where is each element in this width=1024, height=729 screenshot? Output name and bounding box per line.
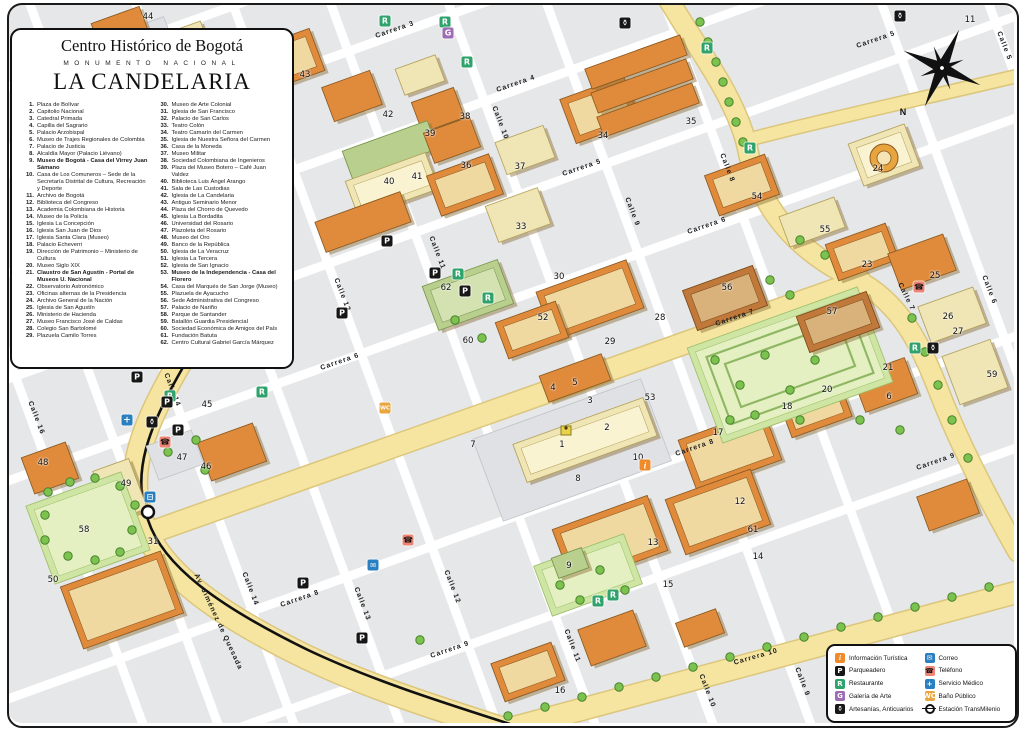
legend-label: Estación TransMilenio: [939, 706, 1001, 713]
poi-item: 4.Capilla del Sagrario: [21, 123, 149, 130]
poi-number: 16.: [21, 228, 34, 235]
poi-label: Universidad del Rosario: [172, 221, 284, 228]
tree: [116, 548, 124, 556]
tree: [44, 488, 52, 496]
legend-label: Restaurante: [849, 680, 883, 687]
poi-item: 39.Plaza del Museo Botero – Café Juan Va…: [156, 165, 284, 179]
map-subtitle: MONUMENTO NACIONAL: [21, 60, 283, 67]
poi-number: 40.: [156, 179, 169, 186]
legend-item-medical: +Servicio Médico: [925, 678, 1009, 690]
poi-number: 9.: [21, 158, 34, 172]
poi-label: Catedral Primada: [37, 116, 149, 123]
poi-label: Iglesia La Bordadita: [172, 214, 284, 221]
poi-label: Casa de Los Comuneros – Sede de la Secre…: [37, 172, 149, 193]
poi-item: 38.Sociedad Colombiana de Ingenieros: [156, 158, 284, 165]
poi-item: 51.Iglesia La Tercera: [156, 256, 284, 263]
poi-label: Palacio Arzobispal: [37, 130, 149, 137]
poi-label: Iglesia Santa Clara (Museo): [37, 235, 149, 242]
poi-label: Palacio de San Carlos: [172, 116, 284, 123]
poi-item: 52.Iglesia de San Ignacio: [156, 263, 284, 270]
poi-label: Plazoleta del Rosario: [172, 228, 284, 235]
poi-number: 27.: [21, 319, 34, 326]
poi-label: Biblioteca Luis Ángel Arango: [172, 179, 284, 186]
poi-item: 53.Museo de la Independencia - Casa del …: [156, 270, 284, 284]
tree: [91, 474, 99, 482]
bolivar-statue: [561, 426, 571, 435]
legend-item-gallery: GGalería de Arte: [835, 690, 919, 702]
poi-item: 16.Iglesia San Juan de Dios: [21, 228, 149, 235]
tree: [192, 436, 200, 444]
poi-label: Dirección de Patrimonio – Ministerio de …: [37, 249, 149, 263]
tree: [201, 466, 209, 474]
tree: [837, 623, 845, 631]
poi-item: 24.Archivo General de la Nación: [21, 298, 149, 305]
tree: [128, 526, 136, 534]
tree: [621, 586, 629, 594]
poi-number: 42.: [156, 193, 169, 200]
gallery-icon: G: [835, 691, 845, 701]
poi-label: Museo Siglo XIX: [37, 263, 149, 270]
tree: [948, 416, 956, 424]
poi-label: Academia Colombiana de Historia: [37, 207, 149, 214]
poi-number: 5.: [21, 130, 34, 137]
poi-number: 19.: [21, 249, 34, 263]
poi-label: Museo del Oro: [172, 235, 284, 242]
poi-number: 4.: [21, 123, 34, 130]
poi-label: Iglesia de San Ignacio: [172, 263, 284, 270]
poi-number: 30.: [156, 102, 169, 109]
poi-item: 19.Dirección de Patrimonio – Ministerio …: [21, 249, 149, 263]
tree: [796, 416, 804, 424]
poi-number: 25.: [21, 305, 34, 312]
tree: [800, 633, 808, 641]
poi-item: 6.Museo de Trajes Regionales de Colombia: [21, 137, 149, 144]
tree: [41, 511, 49, 519]
poi-number: 54.: [156, 284, 169, 291]
tree: [985, 583, 993, 591]
legend-item-info: iInformación Turística: [835, 652, 919, 664]
poi-item: 10.Casa de Los Comuneros – Sede de la Se…: [21, 172, 149, 193]
legend-item-wc: WCBaño Público: [925, 690, 1009, 702]
poi-item: 35.Iglesia de Nuestra Señora del Carmen: [156, 137, 284, 144]
poi-item: 43.Antiguo Seminario Menor: [156, 200, 284, 207]
legend-item-tm: Estación TransMilenio: [925, 703, 1009, 715]
poi-label: Capilla del Sagrario: [37, 123, 149, 130]
poi-number: 35.: [156, 137, 169, 144]
poi-item: 58.Parque de Santander: [156, 312, 284, 319]
parking-icon: P: [835, 666, 845, 676]
poi-number: 44.: [156, 207, 169, 214]
tree: [541, 703, 549, 711]
poi-item: 40.Biblioteca Luis Ángel Arango: [156, 179, 284, 186]
tree: [711, 356, 719, 364]
poi-number: 17.: [21, 235, 34, 242]
poi-number: 22.: [21, 284, 34, 291]
poi-number: 39.: [156, 165, 169, 179]
poi-label: Iglesia San Juan de Dios: [37, 228, 149, 235]
poi-item: 50.Iglesia de La Veracruz: [156, 249, 284, 256]
phone-icon: ☎: [925, 666, 935, 676]
poi-item: 21.Claustro de San Agustín - Portal de M…: [21, 270, 149, 284]
poi-label: Colegio San Bartolomé: [37, 326, 149, 333]
tree: [911, 603, 919, 611]
poi-item: 7.Palacio de Justicia: [21, 144, 149, 151]
mail-icon: ✉: [925, 653, 935, 663]
tree: [478, 334, 486, 342]
tree: [732, 118, 740, 126]
poi-item: 29.Plazuela Camilo Torres: [21, 333, 149, 340]
poi-number: 10.: [21, 172, 34, 193]
tree: [874, 613, 882, 621]
poi-label: Observatorio Astronómico: [37, 284, 149, 291]
tree: [719, 78, 727, 86]
poi-item: 26.Ministerio de Hacienda: [21, 312, 149, 319]
poi-item: 8.Alcaldía Mayor (Palacio Liévano): [21, 151, 149, 158]
poi-label: Iglesia de La Candelaria: [172, 193, 284, 200]
poi-item: 42.Iglesia de La Candelaria: [156, 193, 284, 200]
tree: [578, 693, 586, 701]
poi-label: Sala de Las Custodias: [172, 186, 284, 193]
poi-number: 43.: [156, 200, 169, 207]
tree: [964, 454, 972, 462]
poi-item: 44.Plaza del Chorro de Quevedo: [156, 207, 284, 214]
poi-label: Plazuela Camilo Torres: [37, 333, 149, 340]
tree: [726, 416, 734, 424]
poi-label: Teatro Colón: [172, 123, 284, 130]
tree: [712, 58, 720, 66]
poi-number: 58.: [156, 312, 169, 319]
tree: [763, 643, 771, 651]
poi-number: 48.: [156, 235, 169, 242]
poi-label: Iglesia de San Agustín: [37, 305, 149, 312]
poi-item: 31.Iglesia de San Francisco: [156, 109, 284, 116]
poi-column-2: 30.Museo de Arte Colonial31.Iglesia de S…: [156, 102, 284, 347]
poi-item: 25.Iglesia de San Agustín: [21, 305, 149, 312]
tree: [856, 416, 864, 424]
poi-label: Teatro Camarín del Carmen: [172, 130, 284, 137]
poi-label: Batallón Guardia Presidencial: [172, 319, 284, 326]
tree: [934, 381, 942, 389]
poi-label: Palacio de Justicia: [37, 144, 149, 151]
poi-item: 47.Plazoleta del Rosario: [156, 228, 284, 235]
poi-item: 3.Catedral Primada: [21, 116, 149, 123]
poi-label: Iglesia La Tercera: [172, 256, 284, 263]
poi-number: 2.: [21, 109, 34, 116]
tree: [64, 552, 72, 560]
poi-number: 32.: [156, 116, 169, 123]
poi-number: 14.: [21, 214, 34, 221]
legend-label: Baño Público: [939, 693, 976, 700]
poi-number: 61.: [156, 333, 169, 340]
poi-label: Archivo General de la Nación: [37, 298, 149, 305]
tree: [416, 636, 424, 644]
tree: [725, 98, 733, 106]
tree: [41, 536, 49, 544]
poi-item: 60.Sociedad Económica de Amigos del País: [156, 326, 284, 333]
transmilenio-station-icon: [142, 506, 154, 518]
poi-label: Alcaldía Mayor (Palacio Liévano): [37, 151, 149, 158]
poi-column-1: 1.Plaza de Bolívar2.Capitolio Nacional3.…: [21, 102, 149, 347]
poi-label: Palacio Echeverri: [37, 242, 149, 249]
poi-number: 34.: [156, 130, 169, 137]
poi-label: Banco de la República: [172, 242, 284, 249]
tree: [596, 566, 604, 574]
poi-number: 62.: [156, 340, 169, 347]
poi-label: Iglesia de La Veracruz: [172, 249, 284, 256]
tree: [786, 291, 794, 299]
poi-item: 17.Iglesia Santa Clara (Museo): [21, 235, 149, 242]
poi-number: 33.: [156, 123, 169, 130]
poi-item: 49.Banco de la República: [156, 242, 284, 249]
poi-list: 1.Plaza de Bolívar2.Capitolio Nacional3.…: [21, 102, 283, 347]
legend-item-parking: PParqueadero: [835, 665, 919, 677]
poi-item: 48.Museo del Oro: [156, 235, 284, 242]
poi-label: Museo de la Policía: [37, 214, 149, 221]
tree: [91, 556, 99, 564]
tree: [761, 351, 769, 359]
poi-item: 54.Casa del Marqués de San Jorge (Museo): [156, 284, 284, 291]
poi-number: 47.: [156, 228, 169, 235]
poi-number: 8.: [21, 151, 34, 158]
poi-number: 13.: [21, 207, 34, 214]
legend-item-crafts: ⚱Artesanías, Anticuarios: [835, 703, 919, 715]
legend-item-restaurant: RRestaurante: [835, 678, 919, 690]
poi-item: 20.Museo Siglo XIX: [21, 263, 149, 270]
poi-number: 59.: [156, 319, 169, 326]
poi-number: 12.: [21, 200, 34, 207]
candelaria-map-page: Carrera 3Carrera 4Carrera 5Carrera 5Call…: [0, 0, 1024, 729]
map-title: Centro Histórico de Bogotá: [21, 36, 283, 56]
poi-number: 45.: [156, 214, 169, 221]
poi-label: Antiguo Seminario Menor: [172, 200, 284, 207]
poi-number: 29.: [21, 333, 34, 340]
poi-label: Biblioteca del Congreso: [37, 200, 149, 207]
tree: [504, 712, 512, 720]
tree: [796, 236, 804, 244]
poi-item: 27.Museo Francisco José de Caldas: [21, 319, 149, 326]
poi-number: 51.: [156, 256, 169, 263]
poi-number: 53.: [156, 270, 169, 284]
title-box: Centro Histórico de Bogotá MONUMENTO NAC…: [10, 28, 294, 369]
tree: [821, 251, 829, 259]
poi-label: Iglesia de Nuestra Señora del Carmen: [172, 137, 284, 144]
legend-item-phone: ☎Teléfono: [925, 665, 1009, 677]
legend-box: iInformación TurísticaPParqueaderoRResta…: [826, 644, 1017, 723]
poi-number: 28.: [21, 326, 34, 333]
observatory-building: [870, 144, 898, 172]
tree: [921, 348, 929, 356]
tree: [556, 581, 564, 589]
poi-item: 33.Teatro Colón: [156, 123, 284, 130]
poi-item: 61.Fundación Batuta: [156, 333, 284, 340]
poi-item: 34.Teatro Camarín del Carmen: [156, 130, 284, 137]
poi-label: Fundación Batuta: [172, 333, 284, 340]
poi-number: 6.: [21, 137, 34, 144]
poi-label: Plaza del Chorro de Quevedo: [172, 207, 284, 214]
poi-item: 55.Plazuela de Ayacucho: [156, 291, 284, 298]
tree: [948, 593, 956, 601]
poi-label: Museo de la Independencia - Casa del Flo…: [172, 270, 284, 284]
poi-item: 30.Museo de Arte Colonial: [156, 102, 284, 109]
poi-number: 36.: [156, 144, 169, 151]
tm-icon: [925, 704, 935, 714]
poi-label: Palacio de Nariño: [172, 305, 284, 312]
poi-number: 49.: [156, 242, 169, 249]
poi-label: Sociedad Económica de Amigos del País: [172, 326, 284, 333]
poi-number: 20.: [21, 263, 34, 270]
tree: [739, 138, 747, 146]
poi-label: Museo Militar: [172, 151, 284, 158]
poi-label: Ministerio de Hacienda: [37, 312, 149, 319]
poi-item: 56.Sede Administrativa del Congreso: [156, 298, 284, 305]
poi-item: 41.Sala de Las Custodias: [156, 186, 284, 193]
tree: [131, 501, 139, 509]
tree: [766, 276, 774, 284]
poi-number: 21.: [21, 270, 34, 284]
poi-label: Sede Administrativa del Congreso: [172, 298, 284, 305]
tree: [696, 18, 704, 26]
poi-label: Claustro de San Agustín - Portal de Muse…: [37, 270, 149, 284]
poi-item: 14.Museo de la Policía: [21, 214, 149, 221]
tree: [736, 381, 744, 389]
poi-number: 50.: [156, 249, 169, 256]
wc-icon: WC: [925, 691, 935, 701]
legend-label: Galería de Arte: [849, 693, 891, 700]
poi-label: Iglesia de San Francisco: [172, 109, 284, 116]
poi-label: Plaza del Museo Botero – Café Juan Valde…: [172, 165, 284, 179]
poi-item: 45.Iglesia La Bordadita: [156, 214, 284, 221]
poi-item: 36.Casa de la Moneda: [156, 144, 284, 151]
legend-item-mail: ✉Correo: [925, 652, 1009, 664]
poi-label: Museo de Trajes Regionales de Colombia: [37, 137, 149, 144]
compass-north-label: N: [900, 107, 907, 117]
poi-number: 31.: [156, 109, 169, 116]
poi-label: Museo Francisco José de Caldas: [37, 319, 149, 326]
tree: [811, 356, 819, 364]
poi-number: 38.: [156, 158, 169, 165]
poi-label: Museo de Arte Colonial: [172, 102, 284, 109]
poi-label: Capitolio Nacional: [37, 109, 149, 116]
poi-label: Parque de Santander: [172, 312, 284, 319]
poi-item: 5.Palacio Arzobispal: [21, 130, 149, 137]
legend-label: Correo: [939, 655, 958, 662]
poi-item: 15.Iglesia La Concepción: [21, 221, 149, 228]
tree: [896, 426, 904, 434]
info-icon: i: [835, 653, 845, 663]
poi-item: 18.Palacio Echeverri: [21, 242, 149, 249]
poi-item: 2.Capitolio Nacional: [21, 109, 149, 116]
tree: [116, 482, 124, 490]
poi-number: 60.: [156, 326, 169, 333]
poi-item: 1.Plaza de Bolívar: [21, 102, 149, 109]
poi-number: 18.: [21, 242, 34, 249]
tree: [751, 411, 759, 419]
poi-item: 13.Academia Colombiana de Historia: [21, 207, 149, 214]
poi-label: Sociedad Colombiana de Ingenieros: [172, 158, 284, 165]
poi-item: 11.Archivo de Bogotá: [21, 193, 149, 200]
tree: [576, 596, 584, 604]
legend-label: Artesanías, Anticuarios: [849, 706, 913, 713]
tree: [615, 683, 623, 691]
tree: [66, 478, 74, 486]
crafts-icon: ⚱: [835, 704, 845, 714]
poi-number: 23.: [21, 291, 34, 298]
poi-number: 56.: [156, 298, 169, 305]
poi-item: 59.Batallón Guardia Presidencial: [156, 319, 284, 326]
poi-item: 37.Museo Militar: [156, 151, 284, 158]
poi-item: 62.Centro Cultural Gabriel García Márque…: [156, 340, 284, 347]
poi-number: 41.: [156, 186, 169, 193]
poi-item: 22.Observatorio Astronómico: [21, 284, 149, 291]
poi-number: 55.: [156, 291, 169, 298]
tree: [451, 316, 459, 324]
poi-label: Plaza de Bolívar: [37, 102, 149, 109]
tree: [652, 673, 660, 681]
poi-number: 24.: [21, 298, 34, 305]
tree: [704, 38, 712, 46]
poi-number: 7.: [21, 144, 34, 151]
restaurant-icon: R: [835, 679, 845, 689]
poi-number: 52.: [156, 263, 169, 270]
poi-label: Centro Cultural Gabriel García Márquez: [172, 340, 284, 347]
poi-number: 26.: [21, 312, 34, 319]
poi-item: 57.Palacio de Nariño: [156, 305, 284, 312]
poi-label: Oficinas alternas de la Presidencia: [37, 291, 149, 298]
poi-number: 57.: [156, 305, 169, 312]
poi-item: 12.Biblioteca del Congreso: [21, 200, 149, 207]
legend-label: Información Turística: [849, 655, 907, 662]
legend-label: Servicio Médico: [939, 680, 983, 687]
tree: [726, 653, 734, 661]
poi-number: 3.: [21, 116, 34, 123]
poi-item: 28.Colegio San Bartolomé: [21, 326, 149, 333]
tree: [908, 314, 916, 322]
map-heading: LA CANDELARIA: [21, 69, 283, 95]
legend-label: Parqueadero: [849, 667, 885, 674]
legend-label: Teléfono: [939, 667, 963, 674]
poi-number: 15.: [21, 221, 34, 228]
tree: [689, 663, 697, 671]
poi-item: 23.Oficinas alternas de la Presidencia: [21, 291, 149, 298]
poi-item: 9.Museo de Bogotá - Casa del Virrey Juan…: [21, 158, 149, 172]
poi-number: 46.: [156, 221, 169, 228]
poi-label: Plazuela de Ayacucho: [172, 291, 284, 298]
poi-label: Iglesia La Concepción: [37, 221, 149, 228]
poi-number: 37.: [156, 151, 169, 158]
poi-label: Museo de Bogotá - Casa del Virrey Juan S…: [37, 158, 149, 172]
poi-number: 1.: [21, 102, 34, 109]
poi-item: 46.Universidad del Rosario: [156, 221, 284, 228]
tree: [164, 448, 172, 456]
poi-label: Archivo de Bogotá: [37, 193, 149, 200]
poi-label: Casa de la Moneda: [172, 144, 284, 151]
legend-column-right: ✉Correo☎Teléfono+Servicio MédicoWCBaño P…: [925, 652, 1009, 715]
poi-number: 11.: [21, 193, 34, 200]
legend-column-left: iInformación TurísticaPParqueaderoRResta…: [835, 652, 919, 715]
tree: [786, 386, 794, 394]
poi-item: 32.Palacio de San Carlos: [156, 116, 284, 123]
poi-label: Casa del Marqués de San Jorge (Museo): [172, 284, 284, 291]
medical-icon: +: [925, 679, 935, 689]
